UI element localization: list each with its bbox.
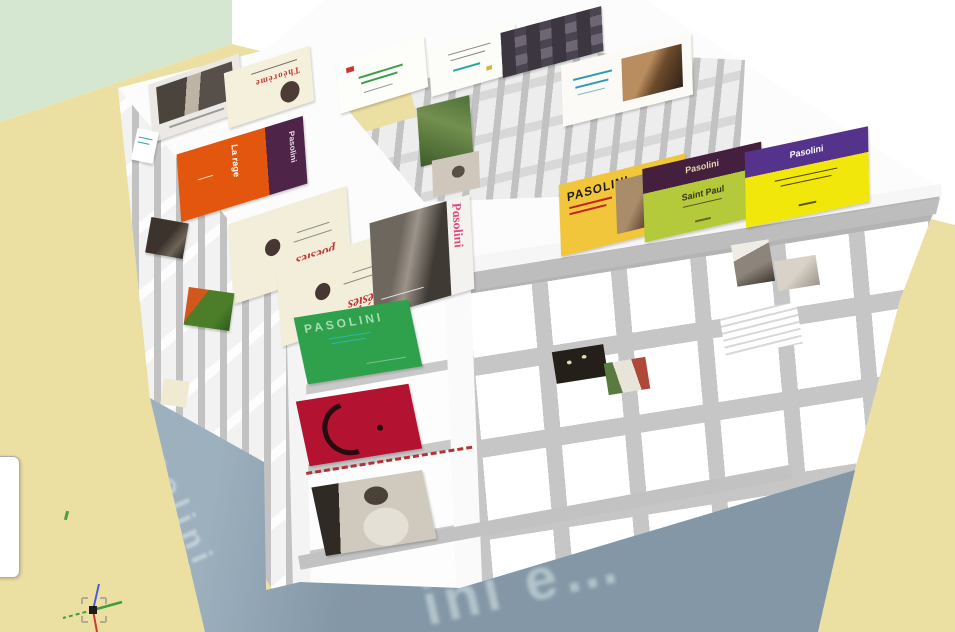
book-title: PASOLINI (303, 310, 385, 336)
cell-photo-color[interactable] (604, 357, 650, 395)
gizmo-bracket (100, 598, 106, 604)
publisher-mark (799, 201, 817, 207)
book-text-line (332, 338, 366, 344)
book-cover-dot (376, 424, 383, 431)
cell-photo-portrait[interactable] (731, 239, 775, 286)
3d-viewport[interactable]: pasolini e … ini e… Théorème La rage (0, 0, 955, 632)
book-text-line (139, 137, 153, 141)
gizmo-bracket (82, 598, 88, 604)
axis-origin (89, 606, 97, 614)
axis-green (93, 602, 122, 610)
book-text-line (781, 175, 832, 187)
book-medallion (315, 281, 331, 302)
book-text-line (578, 88, 605, 96)
axis-green-negative (63, 610, 93, 618)
book-side-vegetables[interactable] (184, 287, 235, 331)
book-text-line (367, 357, 407, 364)
book-cover-arc (314, 393, 386, 465)
gizmo-bracket (100, 616, 106, 622)
gizmo-bracket (82, 616, 88, 622)
book-text-line (453, 62, 480, 72)
book-medallion (280, 78, 301, 105)
book-text-line (198, 175, 213, 181)
book-side-cream[interactable] (160, 378, 189, 407)
book-text-line (138, 141, 150, 144)
left-edge-panel[interactable] (0, 456, 20, 578)
book-medallion (264, 237, 280, 258)
book-title: Pasolini (449, 200, 467, 250)
xyz-axes-icon (58, 578, 128, 632)
book-photo-area (621, 44, 683, 102)
book-spine-title: Pasolini (287, 130, 298, 164)
publisher-mark (695, 217, 711, 223)
book-title: La rage (230, 143, 242, 179)
book-text-line (364, 83, 393, 93)
publisher-mark (346, 66, 354, 73)
book-side-dark-photo[interactable] (145, 217, 189, 259)
book-mark (486, 65, 492, 71)
